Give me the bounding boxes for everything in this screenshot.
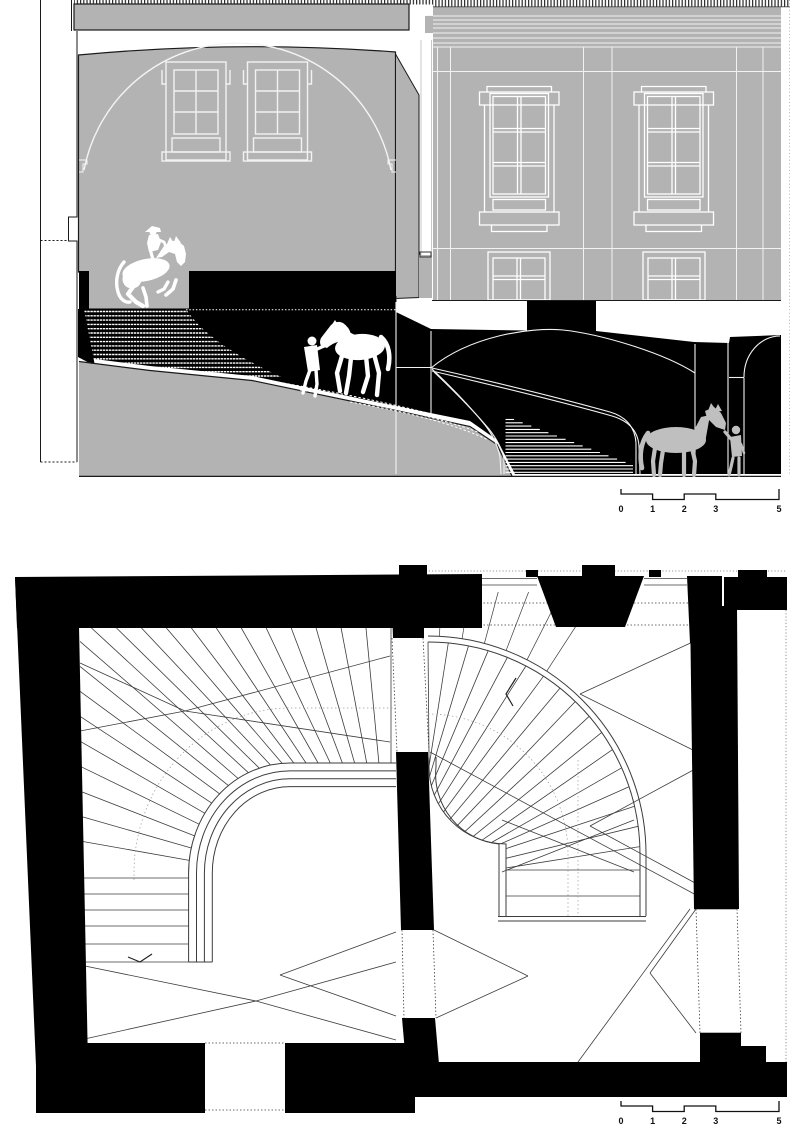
svg-text:3: 3: [713, 1116, 718, 1126]
svg-text:3: 3: [713, 504, 718, 514]
svg-text:1: 1: [650, 1116, 655, 1126]
svg-text:5: 5: [776, 504, 781, 514]
svg-text:2: 2: [682, 504, 687, 514]
svg-text:0: 0: [618, 504, 623, 514]
svg-text:5: 5: [776, 1116, 781, 1126]
svg-text:1: 1: [650, 504, 655, 514]
svg-text:2: 2: [682, 1116, 687, 1126]
svg-text:0: 0: [618, 1116, 623, 1126]
